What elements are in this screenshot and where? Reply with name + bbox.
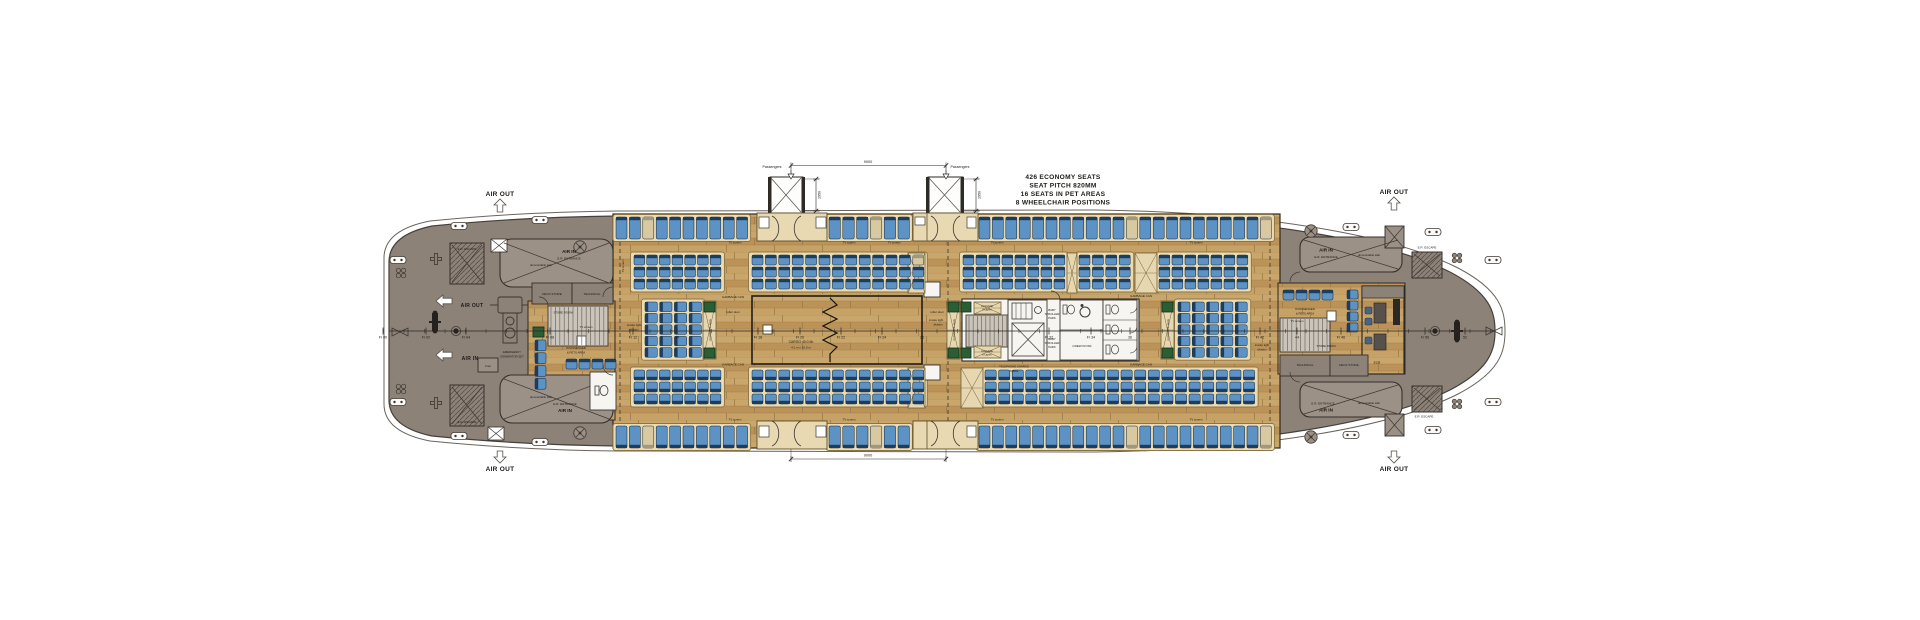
seat <box>672 279 683 289</box>
seat <box>634 370 645 380</box>
plan-label: GARBAGE CAN <box>722 363 744 367</box>
seat <box>1247 426 1258 448</box>
seat <box>1053 394 1064 404</box>
locker-green <box>948 302 959 312</box>
seat <box>752 279 763 289</box>
seat <box>710 426 721 448</box>
seat <box>685 267 696 277</box>
seat <box>1039 382 1050 392</box>
plan-label: AIR IN <box>562 249 576 254</box>
seat <box>765 382 776 392</box>
seat <box>1178 336 1190 346</box>
lobby-bottom-2 <box>913 421 978 449</box>
plan-label: GARBAGE CAN <box>1130 294 1152 298</box>
seat <box>1167 426 1178 448</box>
seat <box>1140 217 1151 239</box>
seat <box>674 325 686 335</box>
seat <box>1198 255 1209 265</box>
seat <box>710 267 721 277</box>
plan-label: TV screen <box>1291 319 1304 323</box>
plan-label: demountable stair <box>1358 401 1380 405</box>
seat <box>1221 325 1233 335</box>
seat <box>1015 267 1026 277</box>
seat <box>645 325 657 335</box>
locker-green <box>961 348 971 358</box>
seat <box>1012 382 1023 392</box>
air-flow-marker: AIR OUT <box>486 191 515 212</box>
seat-count-annotation: 426 ECONOMY SEATS <box>1025 174 1101 181</box>
plan-label: E.R. ESCAPE <box>458 420 477 424</box>
seat <box>672 394 683 404</box>
seat <box>989 255 1000 265</box>
boarding-vestibules <box>768 177 964 213</box>
seat <box>1073 217 1084 239</box>
locker-green <box>961 302 971 312</box>
plan-label: EMERGENCY <box>503 350 521 354</box>
lashing-point <box>763 325 772 334</box>
seat <box>1015 255 1026 265</box>
luggage-rack <box>1067 253 1077 293</box>
seat <box>806 279 817 289</box>
seat <box>1180 217 1191 239</box>
plan-label: CARGO 40.0 M² <box>789 340 815 344</box>
seat <box>819 255 830 265</box>
seat <box>999 394 1010 404</box>
seat <box>674 302 686 312</box>
seat <box>985 394 996 404</box>
seat <box>683 426 694 448</box>
seat-count-annotation: 8 WHEELCHAIR POSITIONS <box>1016 200 1111 207</box>
seat <box>1054 255 1065 265</box>
seat <box>765 394 776 404</box>
seat <box>689 302 701 312</box>
seat <box>535 340 546 351</box>
seat <box>1148 370 1159 380</box>
locker-green <box>704 348 715 358</box>
seat <box>1107 370 1118 380</box>
plan-label: TV screen <box>580 325 593 329</box>
seat <box>685 370 696 380</box>
crew-kiosk-room <box>1060 300 1103 360</box>
plan-label: DECK STORE <box>542 292 561 296</box>
plan-label: LUGGAGE 8 Layers <box>953 318 956 340</box>
seat <box>779 267 790 277</box>
seat <box>752 267 763 277</box>
seat <box>659 370 670 380</box>
seat <box>870 426 881 448</box>
seat <box>1230 394 1241 404</box>
plan-label: CREW KIOSK <box>1072 344 1091 348</box>
plan-label: demountable stair <box>530 395 552 399</box>
seat <box>660 302 672 312</box>
seat <box>859 382 870 392</box>
seat <box>535 366 546 377</box>
seat <box>857 426 868 448</box>
seat <box>886 394 897 404</box>
plan-label: ECR <box>1374 361 1381 365</box>
seat <box>806 255 817 265</box>
locker-green <box>1162 302 1173 312</box>
seat <box>1079 267 1090 277</box>
frame-label: Fr 34 <box>1087 336 1095 340</box>
seat <box>1100 217 1111 239</box>
seat <box>963 279 974 289</box>
seat <box>1283 290 1294 300</box>
seat <box>1073 426 1084 448</box>
seat <box>1216 382 1227 392</box>
seat <box>1230 370 1241 380</box>
seat <box>647 382 658 392</box>
seat <box>710 394 721 404</box>
plan-label: TV screen <box>843 418 856 422</box>
seat <box>1347 301 1358 310</box>
seat <box>1185 267 1196 277</box>
seat <box>1006 217 1017 239</box>
plan-label: PARK <box>1048 316 1056 320</box>
seat <box>629 426 640 448</box>
seat <box>685 255 696 265</box>
seat <box>989 267 1000 277</box>
seat <box>685 279 696 289</box>
seat <box>1237 279 1248 289</box>
seat <box>886 370 897 380</box>
seat <box>1092 267 1103 277</box>
seat <box>1192 313 1204 323</box>
seat <box>1053 382 1064 392</box>
seat <box>1113 217 1124 239</box>
seat <box>752 382 763 392</box>
seat <box>647 255 658 265</box>
seat <box>616 217 627 239</box>
seat <box>1230 382 1241 392</box>
seat <box>698 255 709 265</box>
seat <box>913 255 924 265</box>
seat <box>672 370 683 380</box>
seat <box>1221 348 1233 358</box>
seat <box>832 394 843 404</box>
seat <box>1015 279 1026 289</box>
plan-label: TV screen <box>1190 418 1203 422</box>
seat <box>1107 382 1118 392</box>
seat <box>1126 217 1137 239</box>
seat <box>685 394 696 404</box>
seat <box>1019 217 1030 239</box>
seat <box>779 394 790 404</box>
seat <box>899 279 910 289</box>
plan-label: TV screen <box>991 418 1004 422</box>
frame-label: Fr 24 <box>878 336 886 340</box>
passengers-label: Passengers <box>763 165 782 169</box>
plan-label: E.R. ENTRANCE <box>1314 255 1337 259</box>
plan-label: 8 Layers <box>982 354 992 357</box>
seat <box>1148 382 1159 392</box>
seat <box>698 370 709 380</box>
seat <box>535 353 546 364</box>
seat <box>1002 279 1013 289</box>
seat <box>899 394 910 404</box>
seat <box>710 279 721 289</box>
seat <box>832 267 843 277</box>
seat <box>857 217 868 239</box>
plan-label: demountable stair <box>1358 253 1380 257</box>
seat <box>656 217 667 239</box>
seat <box>1178 325 1190 335</box>
seat <box>873 267 884 277</box>
frame-label: Fr 42 <box>1256 336 1264 340</box>
air-flow-marker: AIR OUT <box>1380 451 1409 473</box>
air-arrow-icon <box>494 451 506 463</box>
plan-label: TECHNICAL <box>583 292 600 296</box>
frame-label: 52 <box>1463 336 1467 340</box>
seat <box>1234 426 1245 448</box>
seat <box>1119 255 1130 265</box>
frame-label: Fr 18 <box>754 336 762 340</box>
seat <box>1028 279 1039 289</box>
seat <box>1094 394 1105 404</box>
plan-label: TV screen <box>843 241 856 245</box>
deck-plan-drawing: Fr 00Fr 02Fr 04Fr 08Fr 1214Fr 18Fr 20Fr … <box>0 0 1920 620</box>
seat <box>989 279 1000 289</box>
seat <box>792 279 803 289</box>
seat <box>1175 370 1186 380</box>
seat <box>1172 279 1183 289</box>
seat <box>645 348 657 358</box>
seat <box>634 382 645 392</box>
seat <box>1189 370 1200 380</box>
seat <box>992 217 1003 239</box>
seat <box>1054 279 1065 289</box>
frame-label: 26 <box>920 336 924 340</box>
seat <box>1235 336 1247 346</box>
mooring-cleat <box>1485 399 1501 406</box>
seat <box>1180 426 1191 448</box>
seat <box>873 394 884 404</box>
seat <box>859 370 870 380</box>
plan-label: TV screen <box>991 241 1004 245</box>
seat <box>1296 290 1307 300</box>
seat <box>689 348 701 358</box>
seat <box>765 279 776 289</box>
seat <box>1041 279 1052 289</box>
seat <box>963 267 974 277</box>
seat <box>634 394 645 404</box>
seat <box>846 267 857 277</box>
seat <box>832 370 843 380</box>
seat <box>1086 217 1097 239</box>
frame-label: Fr 20 <box>796 336 804 340</box>
air-arrow-icon <box>1388 197 1400 210</box>
seat <box>1172 267 1183 277</box>
plan-label: 8 Layers <box>982 309 992 312</box>
lobby-bottom-1 <box>757 421 827 449</box>
seat <box>899 267 910 277</box>
seat <box>899 255 910 265</box>
locker-green <box>533 327 544 337</box>
seat <box>1153 426 1164 448</box>
seat <box>710 217 721 239</box>
seat <box>645 313 657 323</box>
seat <box>870 217 881 239</box>
seat <box>645 302 657 312</box>
seat <box>999 370 1010 380</box>
seat <box>1153 217 1164 239</box>
seat <box>913 382 924 392</box>
plan-label: division <box>1257 348 1267 352</box>
seat <box>1198 279 1209 289</box>
seat <box>806 267 817 277</box>
mooring-cleat <box>1425 427 1441 434</box>
seat <box>634 267 645 277</box>
seat <box>1067 394 1078 404</box>
seat <box>819 382 830 392</box>
seat <box>1198 267 1209 277</box>
seat <box>1216 370 1227 380</box>
seat <box>829 426 840 448</box>
frame-label: Fr 00 <box>379 336 387 340</box>
seat <box>1026 382 1037 392</box>
seat <box>1159 279 1170 289</box>
air-flow-label: AIR OUT <box>486 191 515 198</box>
seat <box>1207 217 1218 239</box>
seat <box>1019 426 1030 448</box>
seat <box>979 217 990 239</box>
seat <box>1100 426 1111 448</box>
frame-label: Fr 12 <box>629 336 637 340</box>
plan-label: 8 PASSENGER <box>566 346 586 350</box>
seat <box>873 382 884 392</box>
plan-label: STORE ROOM <box>1316 344 1336 348</box>
seat <box>659 267 670 277</box>
seat <box>873 255 884 265</box>
seat <box>1094 370 1105 380</box>
locker-green <box>704 302 715 312</box>
seat <box>1235 348 1247 358</box>
seat <box>1175 394 1186 404</box>
seat <box>859 394 870 404</box>
seat <box>710 370 721 380</box>
seat <box>698 267 709 277</box>
seat <box>1237 267 1248 277</box>
seat <box>1207 302 1219 312</box>
plan-label: LUGGAGE 8 Layers <box>709 318 712 340</box>
plan-label: TELEPHONE CHARGE <box>999 365 1029 369</box>
seat <box>886 382 897 392</box>
seat <box>1211 267 1222 277</box>
seat <box>846 370 857 380</box>
seat <box>1162 370 1173 380</box>
seat <box>846 255 857 265</box>
seat <box>660 325 672 335</box>
seat <box>1203 394 1214 404</box>
seat <box>1347 290 1358 299</box>
air-flow-label: AIR IN <box>462 356 479 362</box>
seat <box>1193 426 1204 448</box>
seat-count-annotation: SEAT PITCH 820MM <box>1029 183 1097 190</box>
seat <box>698 382 709 392</box>
seat <box>1106 255 1117 265</box>
air-flow-label: AIR OUT <box>461 303 484 309</box>
seat <box>1224 279 1235 289</box>
seat <box>659 255 670 265</box>
mooring-cleat <box>1343 432 1359 439</box>
seat <box>656 426 667 448</box>
seat <box>1159 267 1170 277</box>
seat <box>819 279 830 289</box>
seat <box>806 370 817 380</box>
seat <box>1347 312 1358 321</box>
seat <box>683 217 694 239</box>
seat <box>886 279 897 289</box>
plan-label: demountable stair <box>530 263 552 267</box>
seat <box>913 394 924 404</box>
mooring-cleat <box>532 439 548 446</box>
frame-label: Fr 22 <box>837 336 845 340</box>
plan-label: AIR IN <box>1319 248 1333 253</box>
seat <box>1221 313 1233 323</box>
seat <box>985 382 996 392</box>
seat <box>1080 370 1091 380</box>
seat <box>1053 370 1064 380</box>
seat <box>999 382 1010 392</box>
seat <box>765 267 776 277</box>
seat <box>1221 336 1233 346</box>
seat <box>1106 267 1117 277</box>
frame-label: Fr 08 <box>546 336 554 340</box>
plan-label: AIR IN <box>1319 408 1333 413</box>
plan-label: E.R. ESCAPE <box>1415 415 1434 419</box>
seat <box>710 382 721 392</box>
mooring-cleat <box>451 223 467 230</box>
plan-label: & PETS AREA <box>1296 312 1314 316</box>
seat <box>1079 255 1090 265</box>
mooring-cleat <box>390 257 406 264</box>
seat <box>873 279 884 289</box>
plan-label: AIR IN <box>558 408 572 413</box>
seat <box>1094 382 1105 392</box>
seat <box>1028 255 1039 265</box>
seat <box>672 382 683 392</box>
plan-label: TV screen <box>621 259 625 272</box>
seat <box>779 370 790 380</box>
seat <box>1185 279 1196 289</box>
seat <box>898 426 909 448</box>
dimension-value: 9000 <box>864 454 872 458</box>
dimension-9000: 9000 <box>789 160 948 177</box>
plan-label: PARK <box>1048 345 1056 349</box>
seat <box>1148 394 1159 404</box>
fan-icon <box>1305 431 1317 443</box>
seat <box>985 370 996 380</box>
locker-green <box>948 348 959 358</box>
seat <box>1211 279 1222 289</box>
seat <box>898 217 909 239</box>
seat <box>819 394 830 404</box>
seat <box>1207 336 1219 346</box>
seat <box>752 394 763 404</box>
seat <box>1167 217 1178 239</box>
plan-label: smoke tight <box>929 318 944 322</box>
seat <box>659 279 670 289</box>
seat <box>752 370 763 380</box>
seat <box>1121 394 1132 404</box>
passengers-label: Passengers <box>951 165 970 169</box>
seat <box>1092 255 1103 265</box>
plan-label: E.R. ENTRANCE <box>557 257 580 261</box>
frame-label: 14 <box>675 336 679 340</box>
plan-label: 4.1 m x 10.0 m <box>791 346 811 350</box>
seat <box>1041 255 1052 265</box>
plan-label: TV screen <box>729 418 742 422</box>
